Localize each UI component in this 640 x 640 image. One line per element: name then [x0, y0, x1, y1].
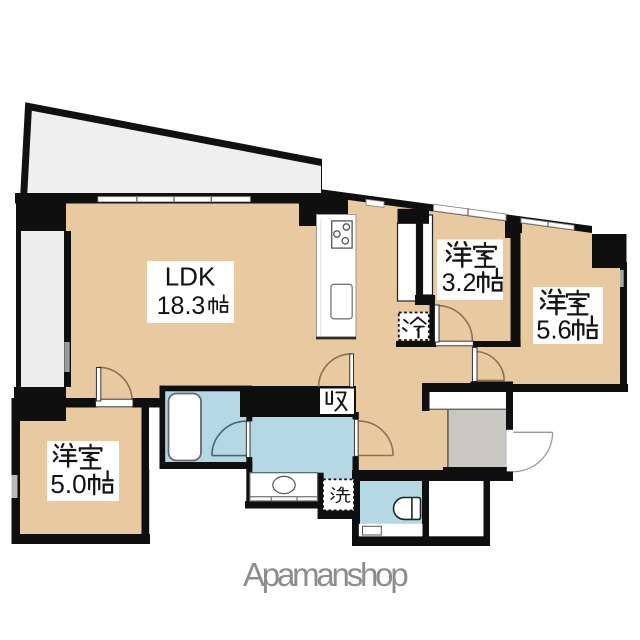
svg-text:LDK: LDK: [165, 262, 216, 292]
svg-text:18.3: 18.3: [157, 292, 206, 320]
svg-text:3.2: 3.2: [442, 269, 477, 297]
svg-text:5.0: 5.0: [50, 469, 86, 499]
svg-text:5.6: 5.6: [536, 317, 571, 345]
svg-text:Apamanshop: Apamanshop: [243, 556, 407, 593]
